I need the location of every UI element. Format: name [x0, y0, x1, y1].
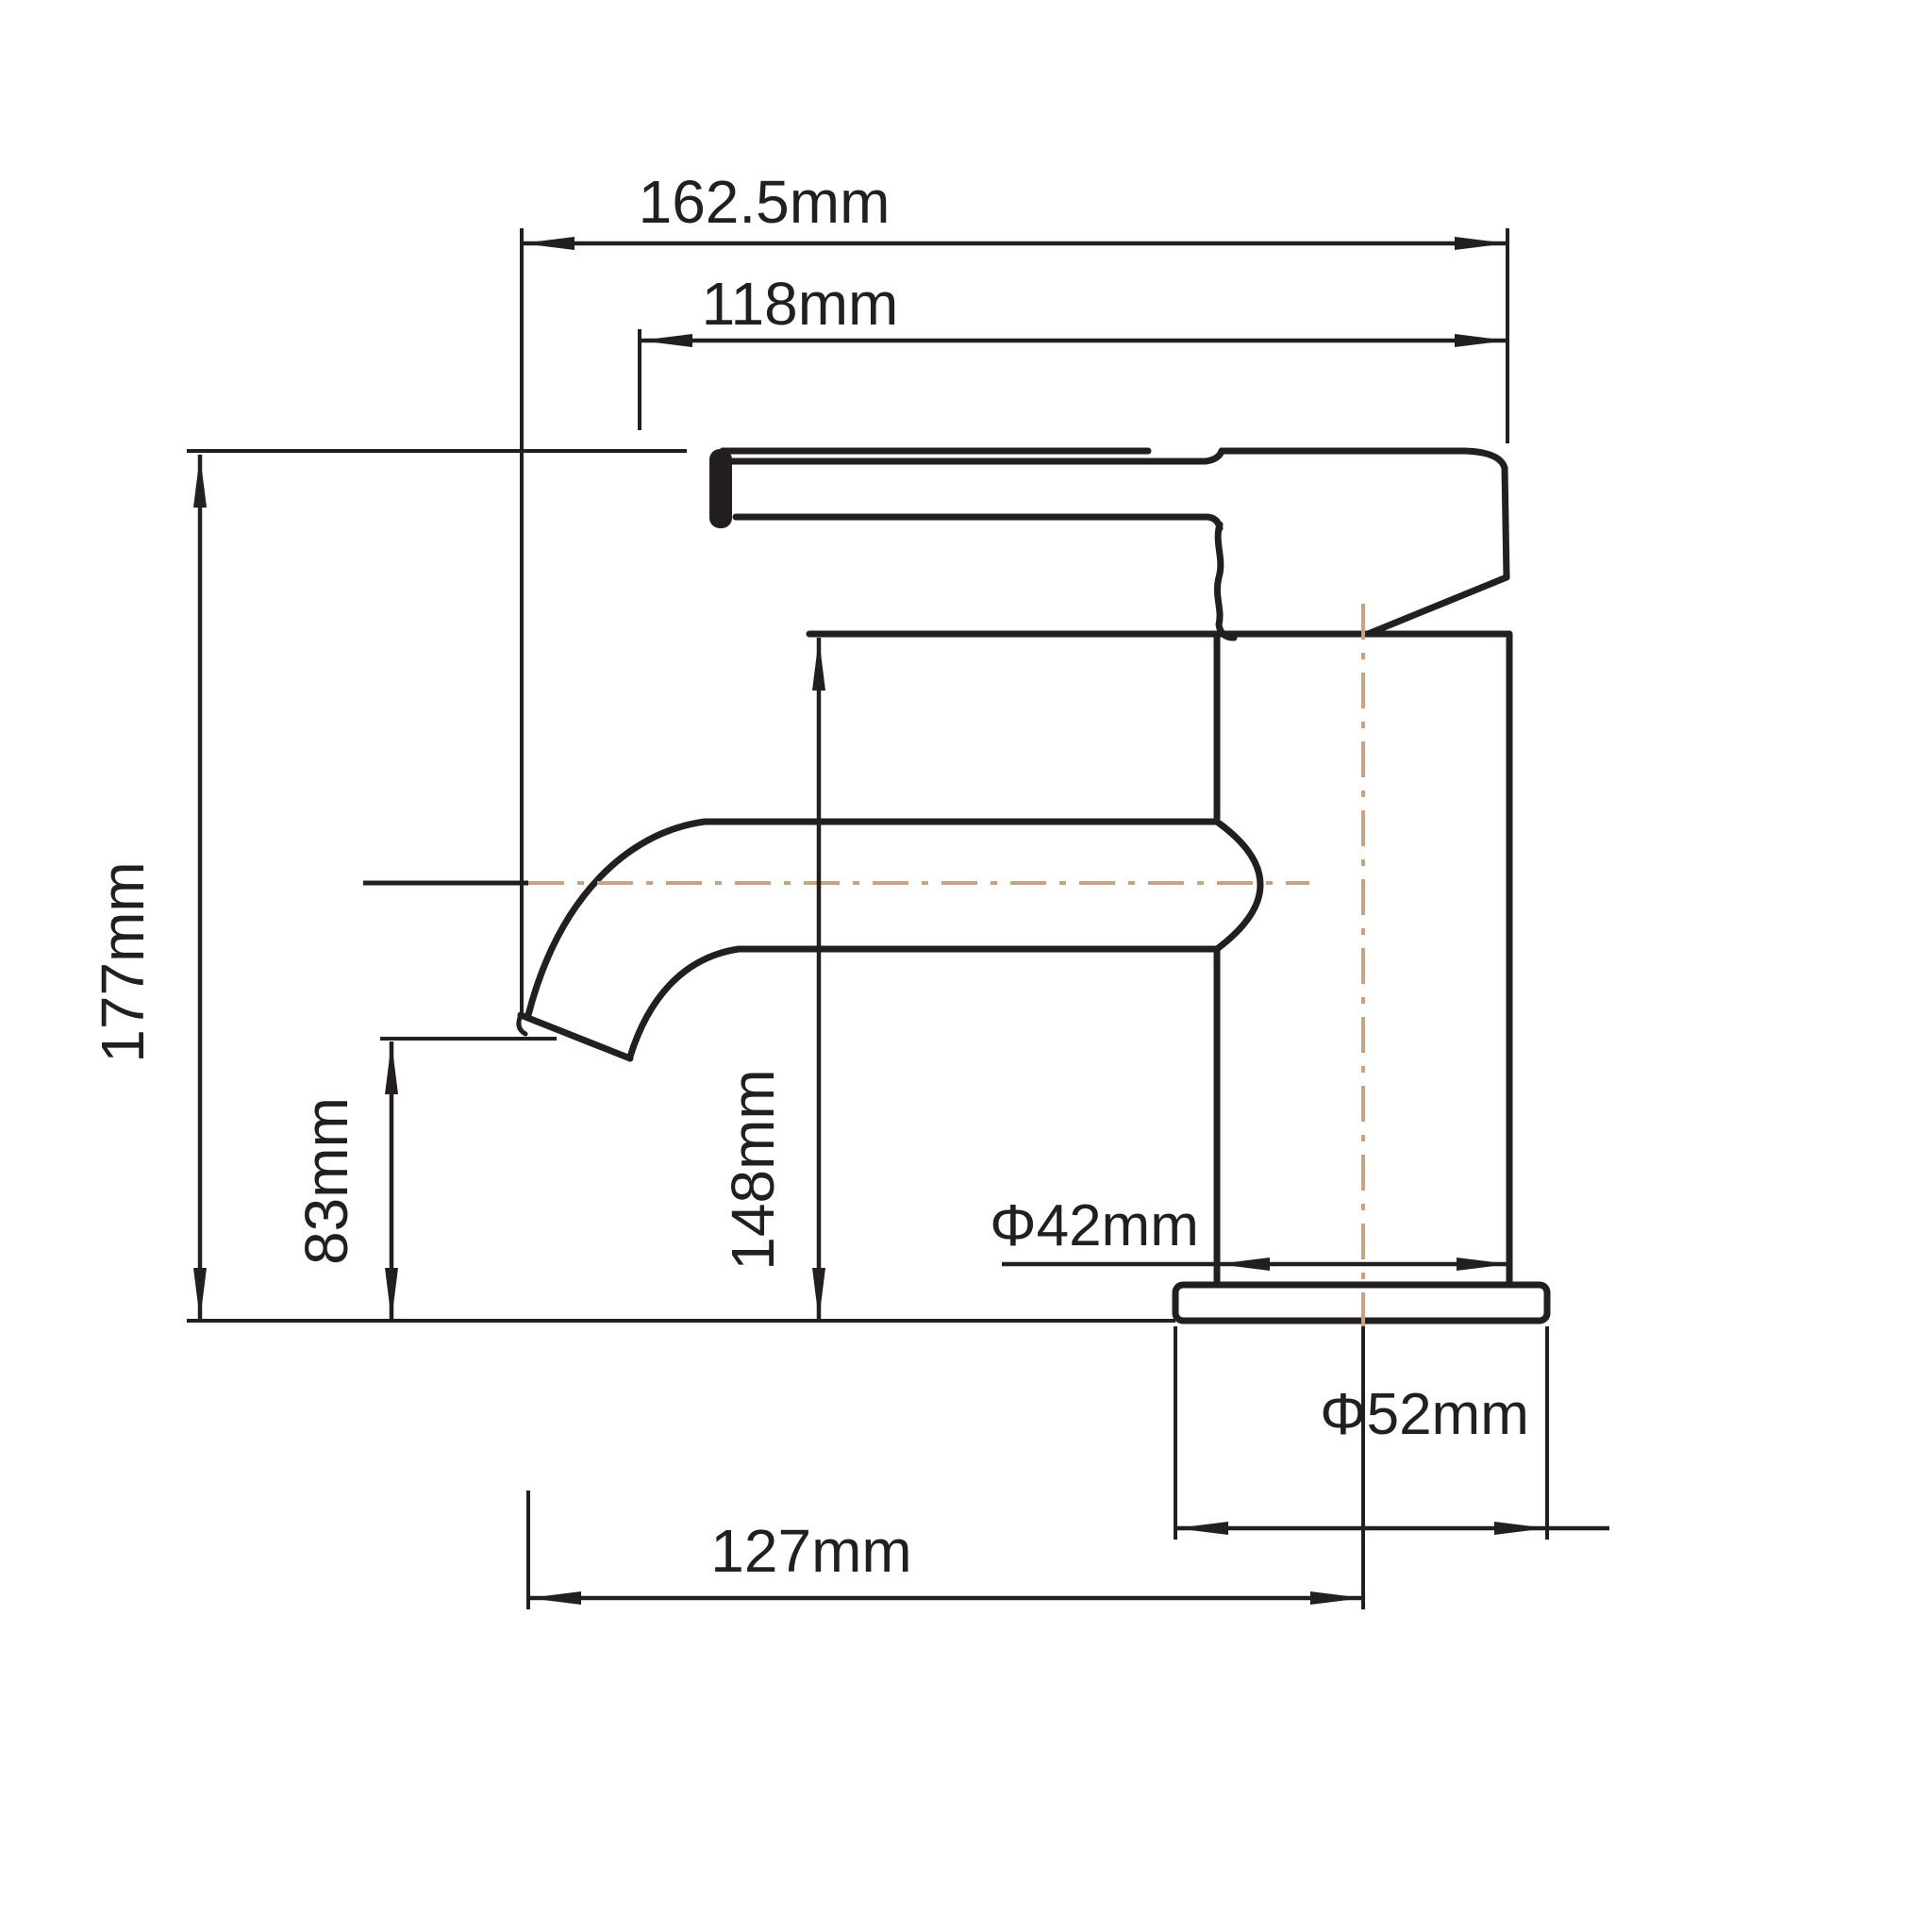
- dim-label-overall-width: 162.5mm: [639, 168, 891, 236]
- dim-handle-length: 118mm: [640, 270, 1507, 430]
- spout-bottom-curve: [630, 949, 739, 1057]
- spout: [519, 822, 1217, 1058]
- handle-rear-slope: [1368, 577, 1507, 634]
- dim-label-spout-reach: 127mm: [710, 1517, 911, 1585]
- handle-lever: [709, 449, 1507, 638]
- dim-body-height: 148mm: [719, 638, 819, 1321]
- dim-overall-width: 162.5mm: [522, 168, 1507, 1017]
- dim-overall-height: 177mm: [89, 451, 1175, 1321]
- faucet-body: [809, 634, 1509, 1285]
- handle-neck-break-line: [1217, 525, 1234, 638]
- spout-body-intersection-arc: [1217, 822, 1260, 949]
- dim-label-body-height: 148mm: [719, 1069, 787, 1270]
- dim-spout-reach: 127mm: [528, 1326, 1363, 1609]
- faucet-technical-drawing: 162.5mm 118mm 177mm 83mm 148mm Φ42mm Φ52…: [0, 0, 1932, 1932]
- dim-spout-outlet-height: 83mm: [292, 1039, 557, 1321]
- dim-label-handle-length: 118mm: [702, 270, 899, 338]
- dim-label-body-diameter: Φ42mm: [990, 1193, 1199, 1258]
- centerlines: [363, 604, 1363, 1349]
- dim-body-diameter: Φ42mm: [990, 1193, 1509, 1264]
- technical-drawing-page: 162.5mm 118mm 177mm 83mm 148mm Φ42mm Φ52…: [0, 0, 1932, 1932]
- dim-label-base-diameter: Φ52mm: [1320, 1382, 1529, 1447]
- handle-top-edge-right: [1222, 451, 1507, 577]
- dim-label-overall-height: 177mm: [89, 861, 157, 1062]
- handle-bottom-edge: [736, 517, 1220, 528]
- spout-top-curve: [528, 822, 705, 1015]
- dim-base-diameter: Φ52mm: [1175, 1326, 1609, 1540]
- dim-label-spout-outlet-height: 83mm: [292, 1097, 360, 1265]
